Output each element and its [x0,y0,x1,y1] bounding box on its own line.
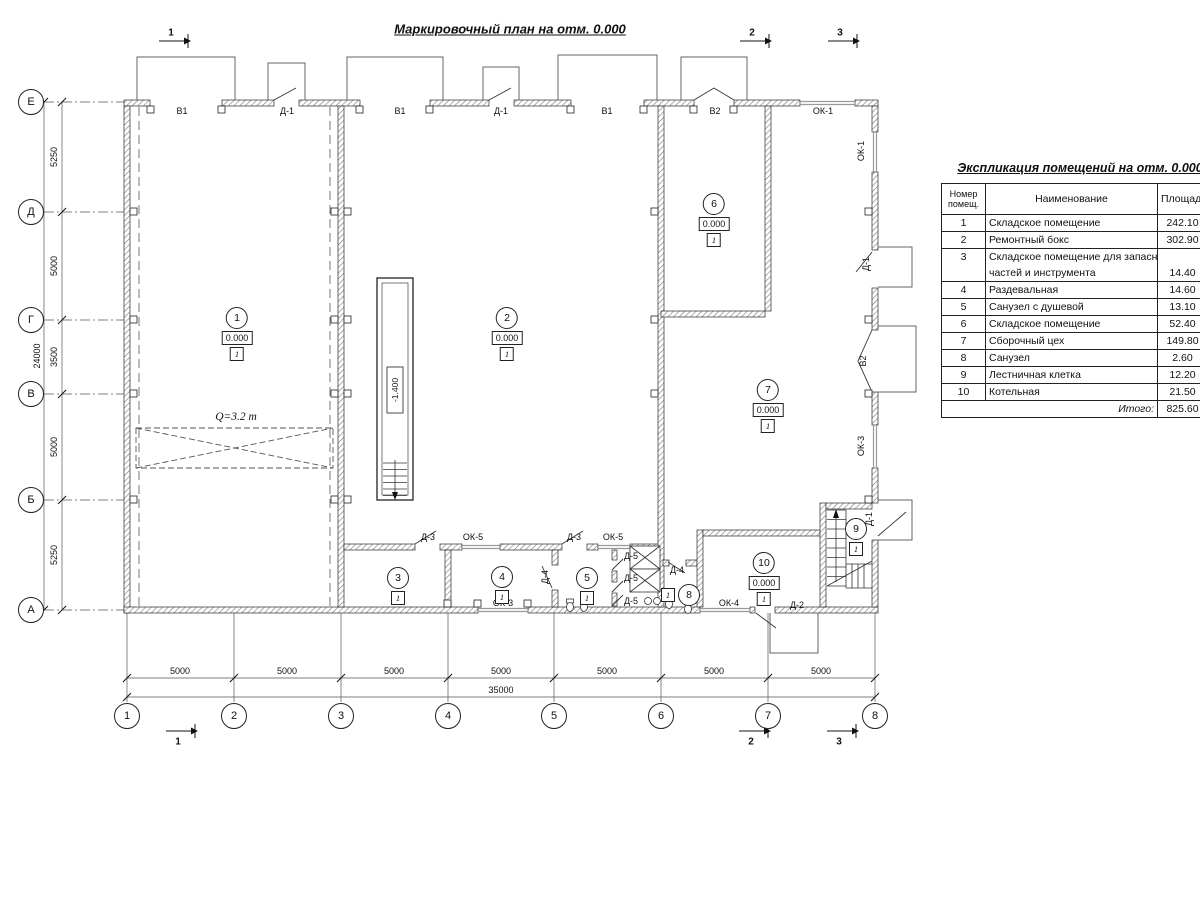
room-name-cell: Раздевальная [986,282,1158,299]
room-area-cell: 302.90 [1158,232,1200,249]
room-number: 2 [496,307,518,329]
door-label-d3a: Д-3 [421,532,435,542]
door-label-d5a: Д-5 [624,551,638,561]
explication-title: Экспликация помещений на отм. 0.000 [957,161,1200,175]
axis-bubble-B: Б [18,487,44,513]
room-name-cell: Ремонтный бокс [986,232,1158,249]
room-name-cell: частей и инструмента [986,265,1158,282]
total-value: 825.60 [1158,401,1200,418]
door-label-d2: Д-2 [790,600,804,610]
dim-bottom-6: 5000 [704,666,724,676]
explication-body: 1 Складское помещение 242.10 2 Ремонтный… [942,215,1200,401]
room-name-cell: Складское помещение для запасных [986,249,1158,266]
room-name-cell: Складское помещение [986,215,1158,232]
room-num-cell: 2 [942,232,986,249]
room-number: 3 [387,567,409,589]
floor-type-mark: 1 [707,233,721,247]
room-number: 6 [703,193,725,215]
canopies [137,55,916,653]
room-marker-7: 7 0.000 1 [753,379,784,433]
room-area-cell [1158,249,1200,266]
axis-bubble-E: Е [18,89,44,115]
room-area-cell: 149.80 [1158,333,1200,350]
section-mark-3-bottom: 3 [836,737,842,748]
room-number: 5 [576,567,598,589]
dim-left-2: 5000 [49,256,59,276]
room-name-cell: Котельная [986,384,1158,401]
room-number: 10 [753,552,775,574]
room-marker-8: 1 8 [661,584,700,606]
axis-bubble-8: 8 [862,703,888,729]
room-marker-6: 6 0.000 1 [699,193,730,247]
dim-left-1: 5250 [49,147,59,167]
dim-left-total: 24000 [32,343,42,368]
floor-type-mark: 1 [391,591,405,605]
axis-bubble-2: 2 [221,703,247,729]
room-name-cell: Санузел с душевой [986,299,1158,316]
dim-left-3: 3500 [49,347,59,367]
room-num-cell: 3 [942,249,986,266]
axis-bubble-1: 1 [114,703,140,729]
room-number: 9 [845,518,867,540]
room-num-cell: 10 [942,384,986,401]
col-header-name: Наименование [986,184,1158,215]
axis-bubble-G: Г [18,307,44,333]
room-name-cell: Складское помещение [986,316,1158,333]
floor-type-mark: 1 [580,591,594,605]
explication-row: 10 Котельная 21.50 [942,384,1200,401]
explication-row: 7 Сборочный цех 149.80 [942,333,1200,350]
dim-bottom-3: 5000 [384,666,404,676]
room-marker-2: 2 0.000 1 [492,307,523,361]
room-elevation: 0.000 [749,576,780,590]
explication-row: 2 Ремонтный бокс 302.90 [942,232,1200,249]
room-num-cell: 8 [942,350,986,367]
room-num-cell: 7 [942,333,986,350]
room-number: 1 [226,307,248,329]
window-label-ok3-right: ОК-3 [856,436,866,456]
floor-type-mark: 1 [761,419,775,433]
room-marker-5: 5 1 [576,567,598,605]
room-area-cell: 242.10 [1158,215,1200,232]
door-label-d4a: Д-4 [540,570,550,584]
explication-row: 9 Лестничная клетка 12.20 [942,367,1200,384]
room-area-cell: 13.10 [1158,299,1200,316]
axis-bubble-4: 4 [435,703,461,729]
gate-label-v1b: В1 [394,106,405,116]
room-area-cell: 14.60 [1158,282,1200,299]
total-label: Итого: [942,401,1158,418]
section-mark-1-bottom: 1 [175,737,181,748]
room-marker-3: 3 1 [387,567,409,605]
axis-bubble-6: 6 [648,703,674,729]
dim-bottom-4: 5000 [491,666,511,676]
dim-bottom-total: 35000 [488,685,513,695]
explication-row: 3 Складское помещение для запасных [942,249,1200,266]
room-marker-1: 1 0.000 1 [222,307,253,361]
room-num-cell: 1 [942,215,986,232]
drawing-title: Маркировочный план на отм. 0.000 [394,22,626,37]
dim-bottom-2: 5000 [277,666,297,676]
floor-type-mark: 1 [757,592,771,606]
gate-label-v1c: В1 [601,106,612,116]
gate-label-v2-top: В2 [709,106,720,116]
dim-bottom-7: 5000 [811,666,831,676]
room-elevation: 0.000 [699,217,730,231]
explication-row: 5 Санузел с душевой 13.10 [942,299,1200,316]
room-marker-10: 10 0.000 1 [749,552,780,606]
window-label-ok4: ОК-4 [719,598,739,608]
door-label-d4b: Д-4 [670,565,684,575]
room-num-cell [942,265,986,282]
floor-type-mark: 1 [849,542,863,556]
door-label-d5c: Д-5 [624,596,638,606]
room-area-cell: 12.20 [1158,367,1200,384]
axis-bubble-7: 7 [755,703,781,729]
room-name-cell: Сборочный цех [986,333,1158,350]
room-num-cell: 9 [942,367,986,384]
door-label-d1b: Д-1 [494,106,508,116]
explication-row: 4 Раздевальная 14.60 [942,282,1200,299]
room-number: 8 [678,584,700,606]
room-area-cell: 2.60 [1158,350,1200,367]
door-label-d3b: Д-3 [567,532,581,542]
axis-bubble-V: В [18,381,44,407]
room-elevation: 0.000 [753,403,784,417]
room-name-cell: Санузел [986,350,1158,367]
explication-row: 1 Складское помещение 242.10 [942,215,1200,232]
drawing-sheet: Маркировочный план на отм. 0.000 1 2 3 1… [0,0,1200,900]
window-label-ok1-top: ОК-1 [813,106,833,116]
door-label-d1a: Д-1 [280,106,294,116]
room-marker-4: 4 1 [491,566,513,604]
room-area-cell: 14.40 [1158,265,1200,282]
gate-label-v1a: В1 [176,106,187,116]
explication-row: частей и инструмента 14.40 [942,265,1200,282]
explication-row: 8 Санузел 2.60 [942,350,1200,367]
room-number: 4 [491,566,513,588]
gate-label-v2-right: В2 [858,355,868,366]
axis-bubble-5: 5 [541,703,567,729]
section-mark-1-top: 1 [168,28,174,39]
axis-bubble-D: Д [18,199,44,225]
section-mark-2-bottom: 2 [748,737,754,748]
room-marker-9: 9 1 [845,518,867,556]
room-name-cell: Лестничная клетка [986,367,1158,384]
axis-bubble-3: 3 [328,703,354,729]
room-number: 7 [757,379,779,401]
col-header-number: Номер помещ. [942,184,986,215]
window-label-ok5a: ОК-5 [463,532,483,542]
crane-capacity-label: Q=3.2 т [215,411,257,423]
floor-type-mark: 1 [230,347,244,361]
room-num-cell: 4 [942,282,986,299]
explication-row: 6 Складское помещение 52.40 [942,316,1200,333]
dim-bottom-1: 5000 [170,666,190,676]
floor-type-mark: 1 [661,588,675,602]
pit-elevation-label: -1.400 [390,378,400,402]
window-label-ok1-right: ОК-1 [856,141,866,161]
room-num-cell: 6 [942,316,986,333]
room-num-cell: 5 [942,299,986,316]
section-mark-2-top: 2 [749,28,755,39]
section-mark-3-top: 3 [837,28,843,39]
door-label-d5b: Д-5 [624,573,638,583]
explication-total-row: Итого: 825.60 [942,401,1200,418]
room-elevation: 0.000 [222,331,253,345]
dim-bottom-5: 5000 [597,666,617,676]
room-area-cell: 21.50 [1158,384,1200,401]
dim-left-5: 5250 [49,545,59,565]
door-label-d1-right: Д-1 [861,257,871,271]
window-label-ok5b: ОК-5 [603,532,623,542]
room-elevation: 0.000 [492,331,523,345]
axis-bubble-A: А [18,597,44,623]
room-area-cell: 52.40 [1158,316,1200,333]
col-header-area: Площадь [1158,184,1200,215]
explication-header-row: Номер помещ. Наименование Площадь Ка по [942,184,1200,215]
explication-table: Номер помещ. Наименование Площадь Ка по … [941,183,1200,418]
dim-left-4: 5000 [49,437,59,457]
floor-type-mark: 1 [495,590,509,604]
floor-plan-linework [0,0,1200,900]
floor-type-mark: 1 [500,347,514,361]
